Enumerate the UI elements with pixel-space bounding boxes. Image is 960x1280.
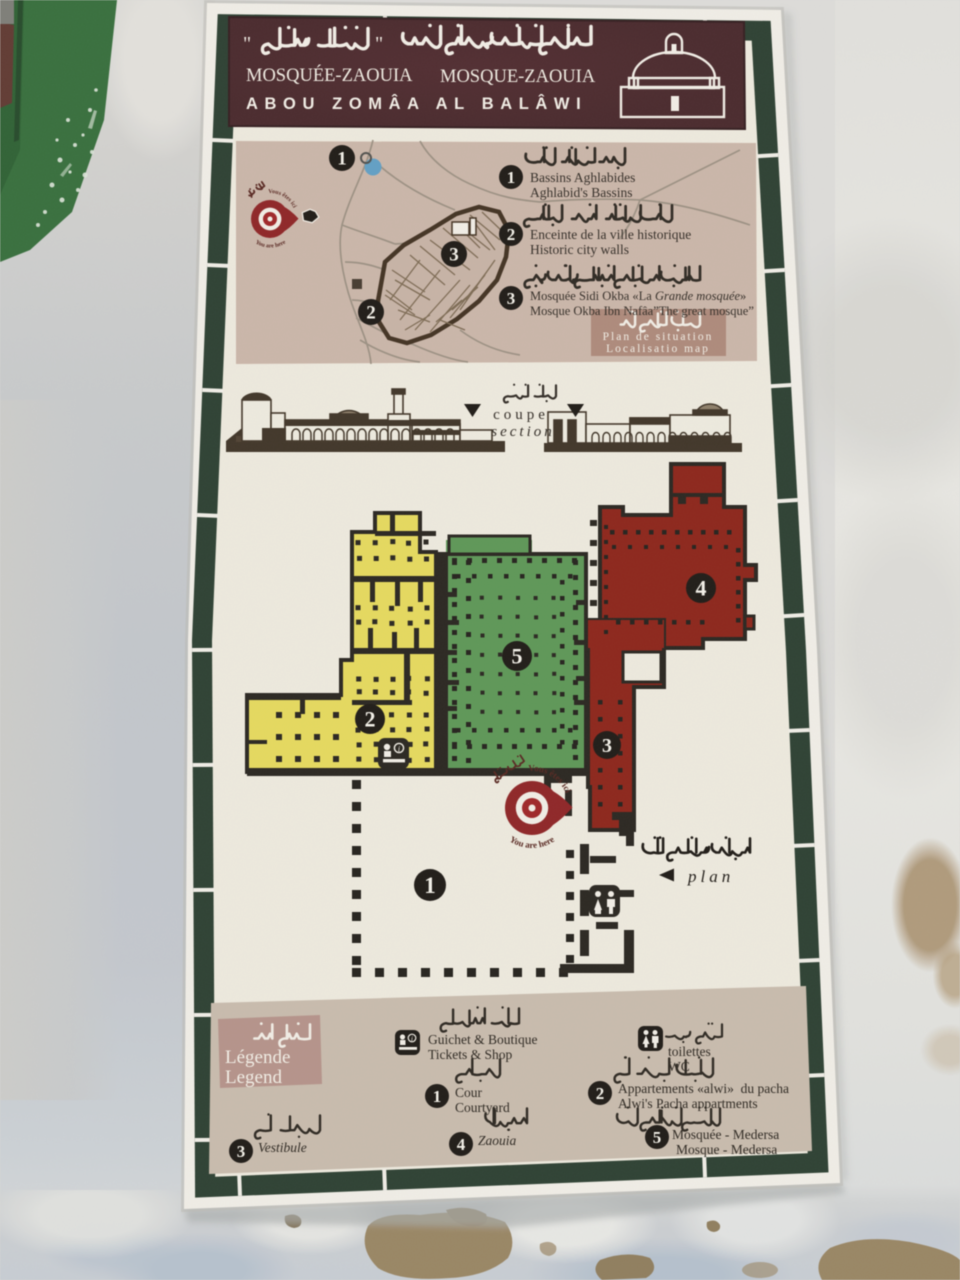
- svg-text:": ": [243, 33, 251, 55]
- svg-text:You are here: You are here: [254, 239, 287, 249]
- svg-text:Plan de situation: Plan de situation: [603, 331, 714, 343]
- svg-text:ABOU ZOMÂA AL BALÂWI: ABOU ZOMÂA AL BALÂWI: [246, 94, 587, 113]
- svg-text:3: 3: [602, 735, 612, 757]
- svg-text:Localisatio map: Localisatio map: [606, 343, 710, 355]
- svg-text:4: 4: [457, 1135, 466, 1154]
- svg-text:1: 1: [424, 873, 436, 898]
- svg-text:i: i: [398, 745, 400, 754]
- svg-text:3: 3: [507, 289, 516, 308]
- svg-text:2: 2: [596, 1084, 605, 1103]
- svg-text:4: 4: [696, 575, 707, 600]
- svg-text:i: i: [411, 1035, 413, 1043]
- svg-text:section: section: [491, 424, 555, 440]
- svg-text:1: 1: [337, 148, 347, 169]
- svg-text:": ": [375, 33, 383, 55]
- svg-text:You are here: You are here: [508, 834, 556, 850]
- svg-text:3: 3: [449, 244, 459, 265]
- svg-text:plan: plan: [687, 867, 734, 886]
- svg-text:coupe: coupe: [493, 407, 549, 423]
- svg-text:2: 2: [507, 225, 516, 244]
- svg-text:5: 5: [653, 1128, 662, 1147]
- svg-text:5: 5: [512, 643, 523, 668]
- svg-text:2: 2: [366, 302, 376, 323]
- svg-text:2: 2: [365, 706, 376, 731]
- svg-text:1: 1: [507, 168, 516, 187]
- svg-text:3: 3: [237, 1142, 246, 1161]
- svg-text:1: 1: [433, 1087, 442, 1106]
